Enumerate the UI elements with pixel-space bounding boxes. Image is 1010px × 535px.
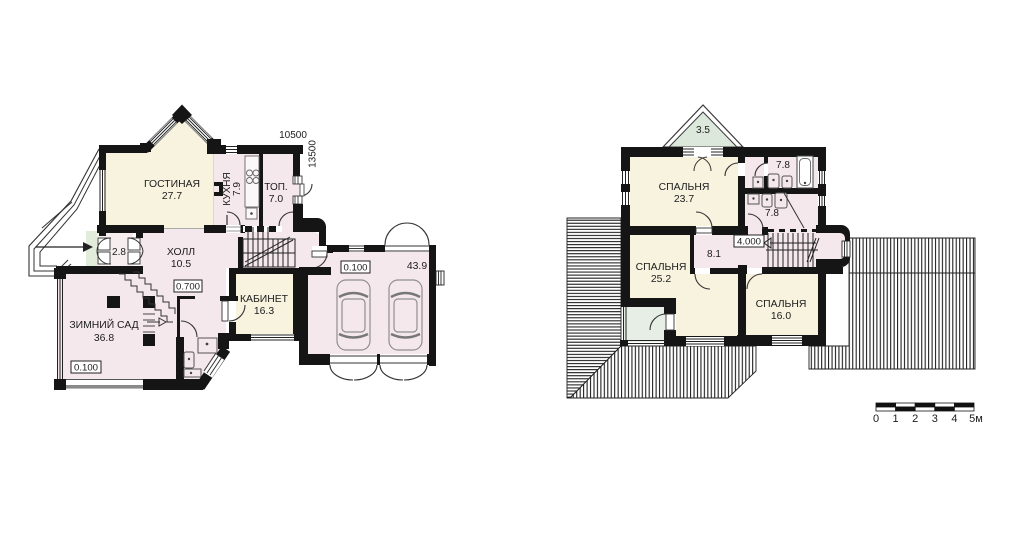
svg-text:СПАЛЬНЯ: СПАЛЬНЯ [636, 262, 687, 273]
svg-text:7.0: 7.0 [269, 194, 284, 205]
svg-text:ТОП.: ТОП. [264, 182, 287, 193]
svg-text:0.700: 0.700 [176, 282, 200, 293]
svg-text:2: 2 [912, 413, 918, 425]
svg-text:10.5: 10.5 [171, 259, 191, 270]
svg-text:0: 0 [873, 413, 879, 425]
svg-text:3.5: 3.5 [696, 125, 710, 136]
svg-text:8.1: 8.1 [707, 249, 721, 260]
svg-text:0.100: 0.100 [343, 263, 367, 274]
svg-text:КАБИНЕТ: КАБИНЕТ [240, 294, 289, 305]
svg-text:16.0: 16.0 [771, 311, 791, 322]
svg-text:2.8: 2.8 [112, 247, 126, 258]
svg-text:ГОСТИНАЯ: ГОСТИНАЯ [144, 179, 200, 190]
svg-text:СПАЛЬНЯ: СПАЛЬНЯ [756, 299, 807, 310]
svg-text:ЗИМНИЙ САД: ЗИМНИЙ САД [69, 318, 138, 331]
svg-text:7.8: 7.8 [776, 160, 790, 171]
svg-text:43.9: 43.9 [407, 261, 427, 272]
svg-text:36.8: 36.8 [94, 333, 114, 344]
svg-text:ХОЛЛ: ХОЛЛ [167, 247, 195, 258]
svg-text:0.100: 0.100 [74, 363, 98, 374]
svg-text:10500: 10500 [279, 130, 307, 141]
svg-text:1: 1 [893, 413, 899, 425]
svg-text:23.7: 23.7 [674, 194, 694, 205]
svg-text:4.000: 4.000 [737, 237, 761, 248]
svg-text:16.3: 16.3 [254, 306, 274, 317]
svg-text:7.8: 7.8 [765, 208, 779, 219]
svg-text:3: 3 [932, 413, 938, 425]
svg-text:13500: 13500 [308, 140, 319, 168]
svg-text:СПАЛЬНЯ: СПАЛЬНЯ [659, 182, 710, 193]
svg-text:5м: 5м [969, 413, 983, 425]
svg-text:7.9: 7.9 [232, 182, 243, 196]
svg-text:27.7: 27.7 [162, 191, 182, 202]
svg-text:25.2: 25.2 [651, 274, 671, 285]
svg-text:4: 4 [951, 413, 957, 425]
